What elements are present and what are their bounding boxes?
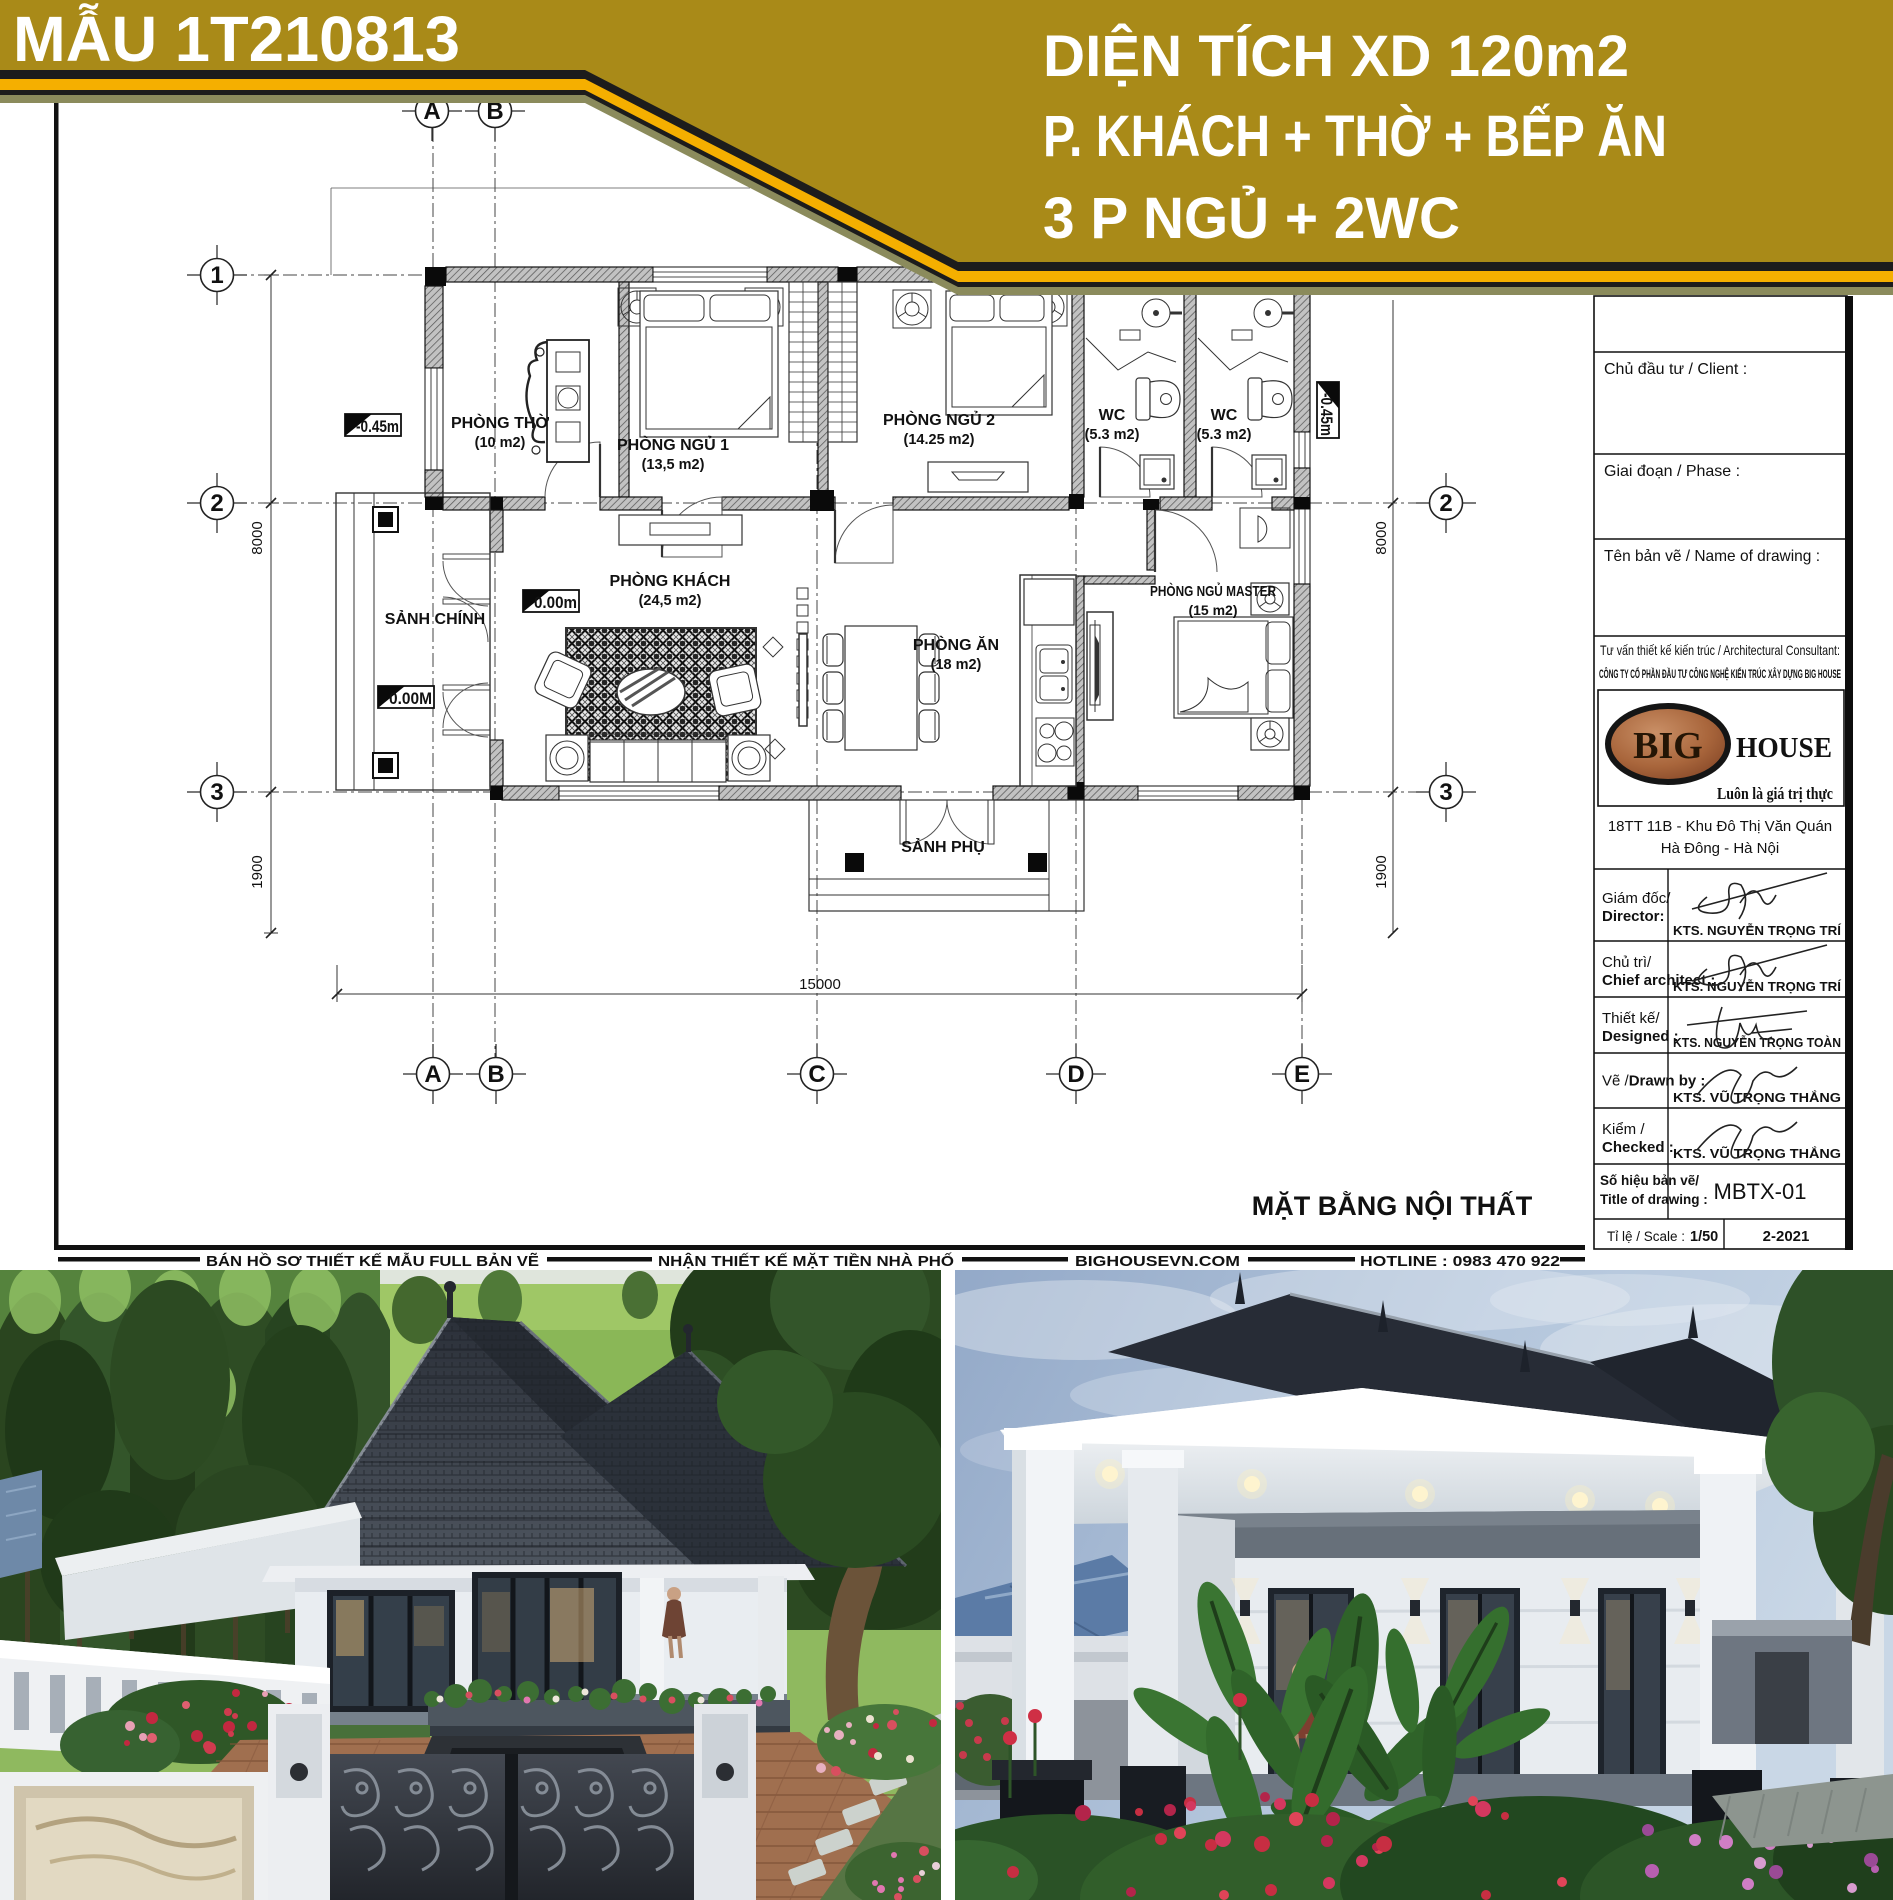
svg-text:Tên bản vẽ / Name of drawing :: Tên bản vẽ / Name of drawing : [1604,548,1820,565]
svg-text:3 P NGỦ + 2WC: 3 P NGỦ + 2WC [1043,186,1460,251]
svg-text:HOUSE: HOUSE [1736,733,1832,764]
svg-text:18TT 11B - Khu Đô Thị Văn Quán: 18TT 11B - Khu Đô Thị Văn Quán [1608,818,1832,835]
svg-text:DIỆN TÍCH XD 120m2: DIỆN TÍCH XD 120m2 [1043,24,1629,89]
svg-text:2: 2 [1439,490,1452,517]
svg-text:Số hiệu bản vẽ/: Số hiệu bản vẽ/ [1600,1173,1699,1188]
svg-text:Giám đốc/: Giám đốc/ [1602,890,1671,907]
svg-text:3: 3 [210,779,223,806]
svg-text:BIGHOUSEVN.COM: BIGHOUSEVN.COM [1075,1253,1240,1270]
svg-text:D: D [1067,1061,1084,1088]
svg-text:WC: WC [1099,407,1126,424]
svg-text:MẶT BẰNG NỘI THẤT: MẶT BẰNG NỘI THẤT [1252,1190,1533,1221]
svg-text:PHÒNG NGỦ 2: PHÒNG NGỦ 2 [883,410,995,429]
svg-text:Director:: Director: [1602,908,1665,925]
svg-text:(24,5 m2): (24,5 m2) [639,593,702,609]
svg-text:8000: 8000 [249,521,266,554]
svg-text:2: 2 [210,490,223,517]
svg-text:PHÒNG KHÁCH: PHÒNG KHÁCH [610,571,731,590]
svg-text:Tỉ lệ / Scale :: Tỉ lệ / Scale : [1607,1229,1685,1244]
svg-text:15000: 15000 [799,976,841,993]
svg-text:Kiểm /: Kiểm / [1602,1121,1645,1138]
svg-text:WC: WC [1211,407,1238,424]
svg-text:Luôn là giá trị thực: Luôn là giá trị thực [1717,784,1833,803]
svg-text:Designed :: Designed : [1602,1028,1679,1045]
svg-text:PHÒNG THỜ: PHÒNG THỜ [451,413,549,432]
svg-text:Title of drawing :: Title of drawing : [1600,1192,1708,1207]
svg-text:NHẬN THIẾT KẾ MẶT TIỀN NHÀ PHỐ: NHẬN THIẾT KẾ MẶT TIỀN NHÀ PHỐ [658,1252,954,1270]
svg-text:1/50: 1/50 [1690,1229,1718,1245]
svg-text:MBTX-01: MBTX-01 [1714,1179,1807,1204]
svg-text:(15 m2): (15 m2) [1188,602,1237,618]
svg-text:Giai đoạn / Phase :: Giai đoạn / Phase : [1604,463,1740,480]
svg-text:Vẽ /Drawn by :: Vẽ /Drawn by : [1602,1073,1705,1090]
svg-text:PHÒNG NGỦ 1: PHÒNG NGỦ 1 [617,435,729,454]
svg-text:Tư vấn thiết kế kiến trúc / Ar: Tư vấn thiết kế kiến trúc / Architectura… [1600,642,1840,658]
svg-text:KTS. NGUYỄN TRỌNG TRÍ: KTS. NGUYỄN TRỌNG TRÍ [1673,923,1841,938]
svg-text:C: C [808,1061,825,1088]
svg-text:Chủ đầu tư / Client :: Chủ đầu tư / Client : [1604,361,1747,378]
svg-text:1900: 1900 [1373,855,1390,888]
svg-text:P. KHÁCH + THỜ + BẾP ĂN: P. KHÁCH + THỜ + BẾP ĂN [1043,104,1667,169]
svg-text:Chủ trì/: Chủ trì/ [1602,954,1652,971]
svg-text:E: E [1294,1061,1310,1088]
svg-text:(14.25 m2): (14.25 m2) [904,432,975,448]
svg-text:0.00M: 0.00M [389,690,432,708]
svg-text:(5.3 m2): (5.3 m2) [1085,427,1140,443]
svg-text:Hà Đông - Hà Nội: Hà Đông - Hà Nội [1661,840,1779,857]
svg-text:1900: 1900 [249,855,266,888]
svg-text:(18 m2): (18 m2) [931,657,982,673]
svg-text:PHÒNG NGỦ MASTER: PHÒNG NGỦ MASTER [1150,582,1276,600]
svg-text:0.00m: 0.00m [534,594,577,612]
svg-text:KTS. VŨ TRỌNG THẮNG: KTS. VŨ TRỌNG THẮNG [1673,1090,1841,1105]
svg-text:(13,5 m2): (13,5 m2) [642,457,705,473]
svg-text:CÔNG TY CỔ PHẦN ĐẦU TƯ CÔNG NG: CÔNG TY CỔ PHẦN ĐẦU TƯ CÔNG NGHỆ KIẾN TR… [1599,666,1841,681]
svg-text:Thiết kế/: Thiết kế/ [1602,1010,1660,1027]
svg-text:SẢNH PHỤ: SẢNH PHỤ [901,837,985,856]
svg-text:(10 m2): (10 m2) [475,435,526,451]
svg-text:-0.45m: -0.45m [1317,393,1335,436]
svg-text:A: A [424,1061,441,1088]
svg-text:8000: 8000 [1373,521,1390,554]
svg-text:-0.45m: -0.45m [356,418,399,436]
svg-text:BIG: BIG [1633,725,1703,767]
svg-text:KTS. NGUYỄN TRỌNG TOÀN: KTS. NGUYỄN TRỌNG TOÀN [1673,1035,1841,1050]
svg-text:Checked :: Checked : [1602,1139,1674,1156]
svg-text:SẢNH CHÍNH: SẢNH CHÍNH [385,609,485,628]
svg-text:HOTLINE : 0983 470 922: HOTLINE : 0983 470 922 [1360,1253,1560,1270]
svg-text:MẪU 1T210813: MẪU 1T210813 [13,3,460,75]
svg-text:(5.3 m2): (5.3 m2) [1197,427,1252,443]
svg-text:3: 3 [1439,779,1452,806]
svg-text:PHÒNG ĂN: PHÒNG ĂN [913,635,999,654]
svg-text:1: 1 [210,262,223,289]
svg-text:BÁN HỒ SƠ THIẾT KẾ MẪU FULL BẢ: BÁN HỒ SƠ THIẾT KẾ MẪU FULL BẢN VẼ [206,1252,539,1270]
svg-text:B: B [487,1061,504,1088]
svg-text:2-2021: 2-2021 [1763,1228,1810,1245]
